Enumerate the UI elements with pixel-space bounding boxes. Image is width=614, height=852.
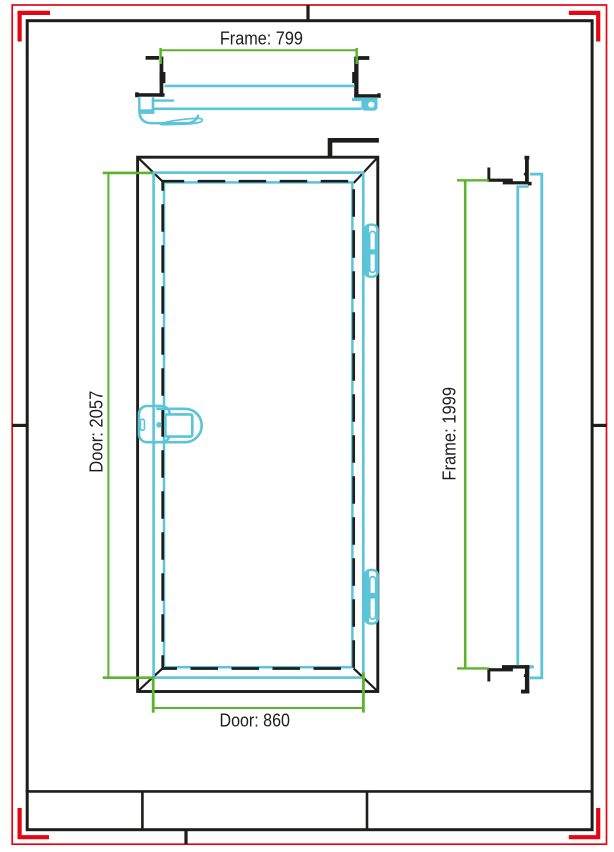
- svg-text:Frame: 1999: Frame: 1999: [439, 387, 460, 481]
- svg-text:Door: 860: Door: 860: [220, 709, 290, 730]
- svg-text:Frame: 799: Frame: 799: [220, 27, 303, 48]
- svg-text:Door: 2057: Door: 2057: [86, 391, 107, 473]
